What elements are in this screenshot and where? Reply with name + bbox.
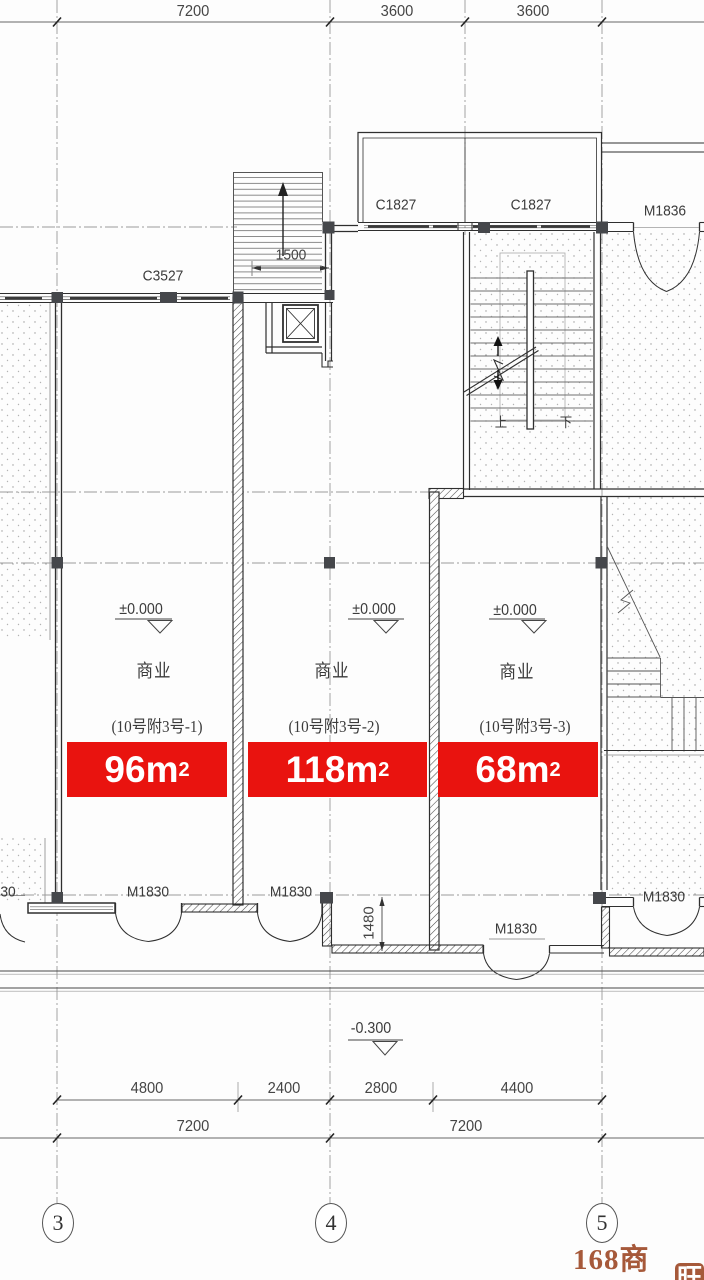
unit3-level: ±0.000 xyxy=(493,602,537,620)
door-label-m1830-unit2: M1830 xyxy=(270,884,312,901)
dim-bot-4800: 4800 xyxy=(131,1080,164,1098)
elevator-shaft xyxy=(266,303,333,367)
watermark-brand-text: 168商铺 xyxy=(573,1236,672,1280)
unit3-use: 商业 xyxy=(500,658,535,684)
dim-stair-width: 1500 xyxy=(276,247,307,264)
grid-bubble-4: 4 xyxy=(315,1203,347,1243)
window-label-c1827-right: C1827 xyxy=(511,197,552,214)
unit1-level: ±0.000 xyxy=(119,601,163,619)
dim-recess-depth: 1480 xyxy=(361,906,378,939)
floor-plan-canvas: 7200 3600 3600 C3527 1500 C1827 C1827 M1… xyxy=(0,0,704,1280)
unit2-area-value: 118 xyxy=(286,751,346,788)
elevation-markers xyxy=(115,619,546,1055)
dim-bot-4400: 4400 xyxy=(501,1080,534,1098)
unit1-area-value: 96 xyxy=(104,751,145,788)
unit2-number: (10号附3号-2) xyxy=(288,713,379,737)
unit1-use: 商业 xyxy=(137,657,172,683)
dim-bot-2400: 2400 xyxy=(268,1080,301,1098)
door-label-m1830-recessed: M1830 xyxy=(495,921,537,938)
sidewalk-lines xyxy=(0,971,704,991)
door-label-m1830-unit1: M1830 xyxy=(127,884,169,901)
unit1-area-banner: 96m2 xyxy=(67,742,227,797)
unit3-area-banner: 68m2 xyxy=(438,742,598,797)
dimension-lines xyxy=(0,18,704,1143)
dim-bot-7200-b: 7200 xyxy=(450,1118,483,1136)
dim-top-3600-a: 3600 xyxy=(381,3,414,21)
watermark-badge: 旺 xyxy=(675,1263,704,1280)
dim-top-3600-b: 3600 xyxy=(517,3,550,21)
door-label-m1830-partial: 30 xyxy=(0,884,15,901)
window-label-c1827-left: C1827 xyxy=(376,197,417,214)
street-level-label: -0.300 xyxy=(351,1020,391,1038)
dim-bot-7200-a: 7200 xyxy=(177,1118,210,1136)
entrance-ramp xyxy=(233,172,323,293)
watermark-logo: 168商铺 旺 xyxy=(573,1236,704,1280)
unit2-use: 商业 xyxy=(315,657,350,683)
walls xyxy=(0,143,704,954)
door-label-m1830-right: M1830 xyxy=(643,889,685,906)
unit3-area-value: 68 xyxy=(475,751,516,788)
floor-plan-linework xyxy=(0,0,704,1280)
unit1-number: (10号附3号-1) xyxy=(111,713,202,737)
dim-bot-2800: 2800 xyxy=(365,1080,398,1098)
stair-up-label: 上 xyxy=(495,411,507,431)
door-label-m1836: M1836 xyxy=(644,203,686,220)
dim-top-7200: 7200 xyxy=(177,3,210,21)
grid-bubble-3: 3 xyxy=(42,1203,74,1243)
unit2-level: ±0.000 xyxy=(352,601,396,619)
unit3-number: (10号附3号-3) xyxy=(479,713,570,737)
label-underlines xyxy=(13,896,545,940)
stair-down-label: 下 xyxy=(560,411,572,431)
window-label-c3527: C3527 xyxy=(143,268,184,285)
unit2-area-banner: 118m2 xyxy=(248,742,427,797)
